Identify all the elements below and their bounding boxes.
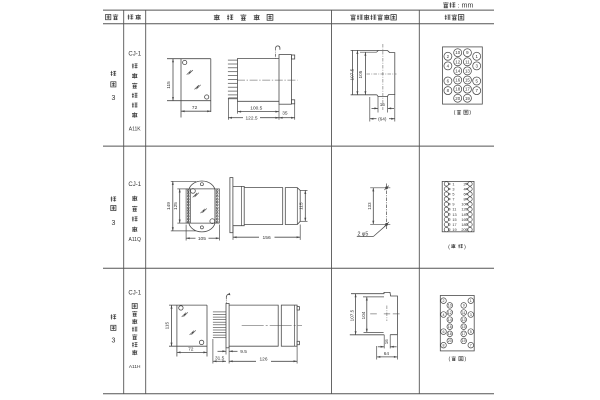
svg-text:3: 3 [475,64,478,69]
svg-text:9.5: 9.5 [240,349,247,355]
svg-text:1: 1 [475,54,478,59]
svg-text:11: 11 [452,208,456,212]
svg-text:14: 14 [461,213,465,217]
svg-text:16: 16 [455,78,460,83]
svg-text:7: 7 [475,88,478,93]
svg-text:35: 35 [282,110,288,116]
svg-text:16: 16 [380,102,386,107]
svg-text:CJ-1: CJ-1 [128,182,141,188]
svg-text:10: 10 [461,203,465,207]
svg-text:): ) [464,244,466,250]
svg-text:9: 9 [463,304,465,308]
svg-text:3: 3 [111,95,115,102]
svg-text:17: 17 [452,223,456,227]
svg-text:(: ( [448,244,450,250]
svg-text:115: 115 [299,202,304,210]
svg-text:125: 125 [173,202,178,210]
svg-text:3: 3 [111,220,115,227]
svg-text:(64): (64) [378,116,387,121]
svg-text:122.5: 122.5 [245,115,257,121]
svg-text:11: 11 [462,311,466,315]
svg-text:19: 19 [462,339,466,343]
svg-text:15: 15 [465,78,470,83]
svg-text:19: 19 [452,228,456,232]
svg-text:CJ-1: CJ-1 [128,290,141,296]
svg-text:107.5: 107.5 [349,68,354,80]
svg-text:13: 13 [465,69,470,74]
svg-text:): ) [469,110,471,116]
svg-text:156: 156 [263,235,271,241]
svg-text:): ) [464,357,466,363]
svg-text:3: 3 [111,338,115,345]
svg-text:2: 2 [443,299,445,303]
svg-text:18: 18 [455,87,460,92]
svg-text:107.5: 107.5 [350,309,355,321]
svg-text:149: 149 [166,202,171,210]
svg-text:18: 18 [448,332,452,336]
svg-text:7: 7 [470,343,472,347]
svg-text:14: 14 [448,318,452,322]
svg-text:133: 133 [367,202,372,210]
svg-text:(: ( [454,110,456,116]
svg-text:10: 10 [448,304,452,308]
svg-text:5: 5 [452,193,454,197]
svg-text:13: 13 [452,213,456,217]
svg-text:(: ( [448,357,450,363]
svg-text:8: 8 [443,343,445,347]
svg-text:115: 115 [165,321,170,329]
svg-text:1: 1 [470,299,472,303]
svg-text:15: 15 [452,218,456,222]
svg-text:11: 11 [465,59,470,64]
svg-text:6: 6 [463,193,465,197]
svg-text:12: 12 [461,208,465,212]
svg-text:16: 16 [384,339,389,344]
svg-text:5: 5 [475,79,478,84]
svg-text:A11K: A11K [129,126,142,132]
svg-text:3: 3 [452,187,454,191]
svg-text:9: 9 [466,50,469,55]
svg-text:20: 20 [455,96,460,101]
svg-text:9: 9 [452,203,454,207]
svg-text:20: 20 [461,228,465,232]
svg-text:17: 17 [462,332,466,336]
svg-text:2: 2 [447,54,450,59]
svg-text:16: 16 [461,218,465,222]
svg-text:13: 13 [462,318,466,322]
svg-text:104: 104 [361,311,366,319]
svg-text:115: 115 [166,81,171,89]
svg-text:64: 64 [384,351,390,356]
svg-text:72: 72 [192,105,198,111]
svg-text:10: 10 [455,50,460,55]
svg-text:8: 8 [463,198,465,202]
svg-text:8: 8 [447,88,450,93]
svg-text:19: 19 [465,96,470,101]
svg-text::: : [458,3,460,10]
svg-text:72: 72 [188,347,194,353]
svg-text:4: 4 [463,187,465,191]
svg-text:126: 126 [259,356,267,362]
svg-text:7: 7 [452,198,454,202]
svg-text:16: 16 [448,325,452,329]
svg-text:6: 6 [447,79,450,84]
svg-text:105: 105 [358,70,363,78]
svg-text:3: 3 [470,313,472,317]
svg-text:4: 4 [443,313,445,317]
svg-text:2: 2 [463,182,465,186]
svg-text:105: 105 [198,236,206,242]
svg-text:4: 4 [447,64,450,69]
svg-text:5: 5 [470,330,472,334]
svg-text:17: 17 [465,87,470,92]
svg-text:mm: mm [462,3,474,10]
svg-text:1: 1 [452,182,454,186]
svg-text:CJ-1: CJ-1 [128,51,141,57]
svg-text:100.5: 100.5 [250,105,262,111]
svg-text:12: 12 [455,59,460,64]
svg-text:18: 18 [461,223,465,227]
svg-text:20: 20 [448,339,452,343]
svg-text:A11Q: A11Q [128,237,141,243]
svg-text:14: 14 [455,69,460,74]
svg-text:A11H: A11H [129,364,141,370]
svg-text:6: 6 [443,330,445,334]
svg-text:12: 12 [448,311,452,315]
svg-text:15: 15 [462,325,466,329]
